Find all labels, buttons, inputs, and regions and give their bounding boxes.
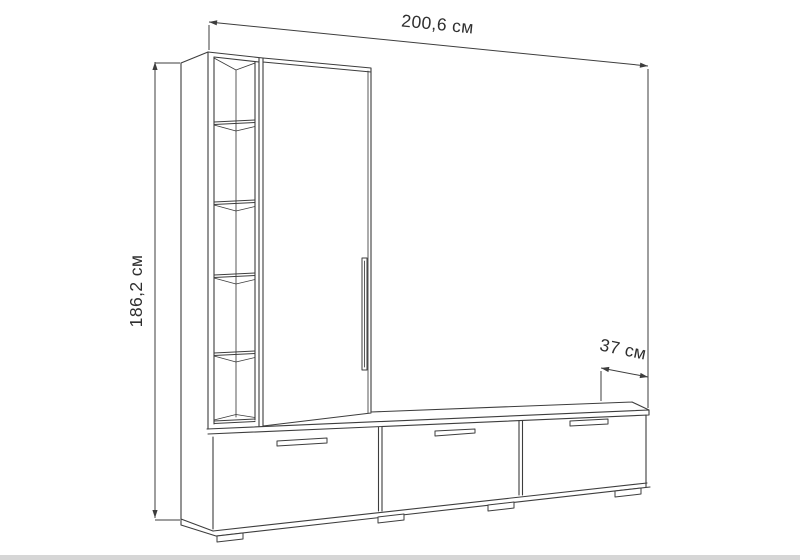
width-dimension-label: 200,6 см	[400, 10, 474, 37]
wardrobe-door-handle	[362, 258, 367, 370]
stand-handle-1	[277, 438, 327, 446]
wardrobe-door	[263, 58, 371, 426]
stand-door-divider-2	[519, 421, 523, 496]
shelf-3	[214, 273, 255, 284]
furniture-dimension-diagram: 200,6 см 186,2 см 37 см	[0, 0, 800, 560]
stand-handle-3	[570, 419, 608, 426]
tv-stand	[207, 402, 650, 542]
depth-dimension-label: 37 см	[598, 335, 648, 364]
stand-feet	[217, 488, 641, 542]
shelf-column-bottom	[214, 415, 255, 424]
arrow-right-icon	[640, 373, 648, 378]
wardrobe-side-panel	[181, 52, 216, 536]
shelf-4	[214, 351, 255, 362]
floor-shadow-line	[0, 555, 800, 560]
arrow-left-icon	[601, 367, 609, 372]
shelf-2	[214, 200, 255, 211]
shelf-1	[214, 120, 255, 131]
arrow-right-icon	[640, 63, 648, 68]
arrow-down-icon	[152, 510, 157, 518]
dimension-height: 186,2 см	[126, 62, 180, 520]
dimension-width: 200,6 см	[209, 10, 648, 408]
height-dimension-label: 186,2 см	[126, 255, 146, 328]
dimension-depth: 37 см	[598, 335, 648, 401]
wardrobe-shelf-column	[208, 52, 263, 429]
diagram-svg: 200,6 см 186,2 см 37 см	[0, 0, 800, 560]
stand-handle-2	[435, 429, 475, 436]
arrow-left-icon	[209, 20, 217, 25]
stand-door-divider-1	[379, 427, 383, 511]
